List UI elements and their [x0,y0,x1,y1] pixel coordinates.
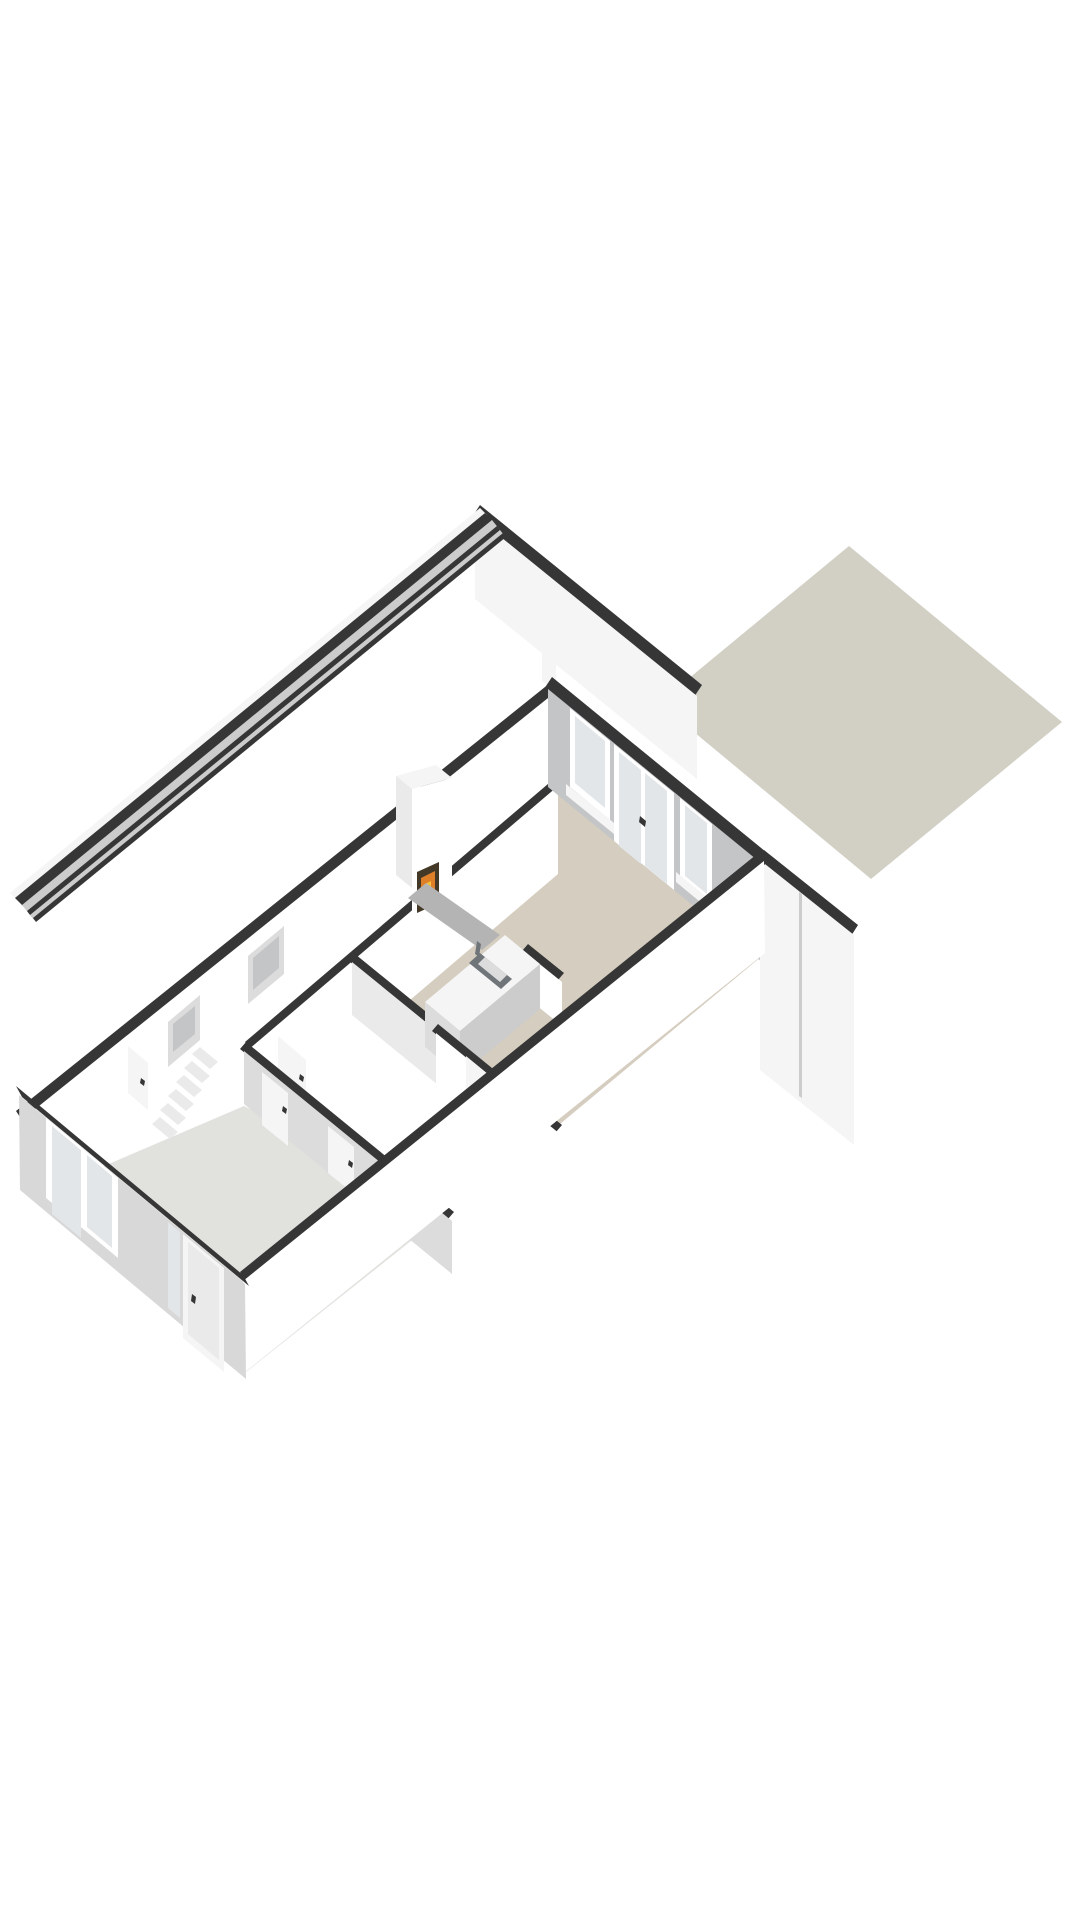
french-door-1-pane [619,752,641,864]
floorplan-canvas [0,0,1080,1920]
front-window-pane-1 [52,1126,81,1238]
se-party-wall-joint [799,892,802,1098]
chimney-side [396,776,412,888]
french-door-2-pane [645,773,667,884]
front-door-sidelight [168,1222,180,1318]
se-party-wall-face [760,860,854,1145]
floorplan-render [0,0,1080,1920]
